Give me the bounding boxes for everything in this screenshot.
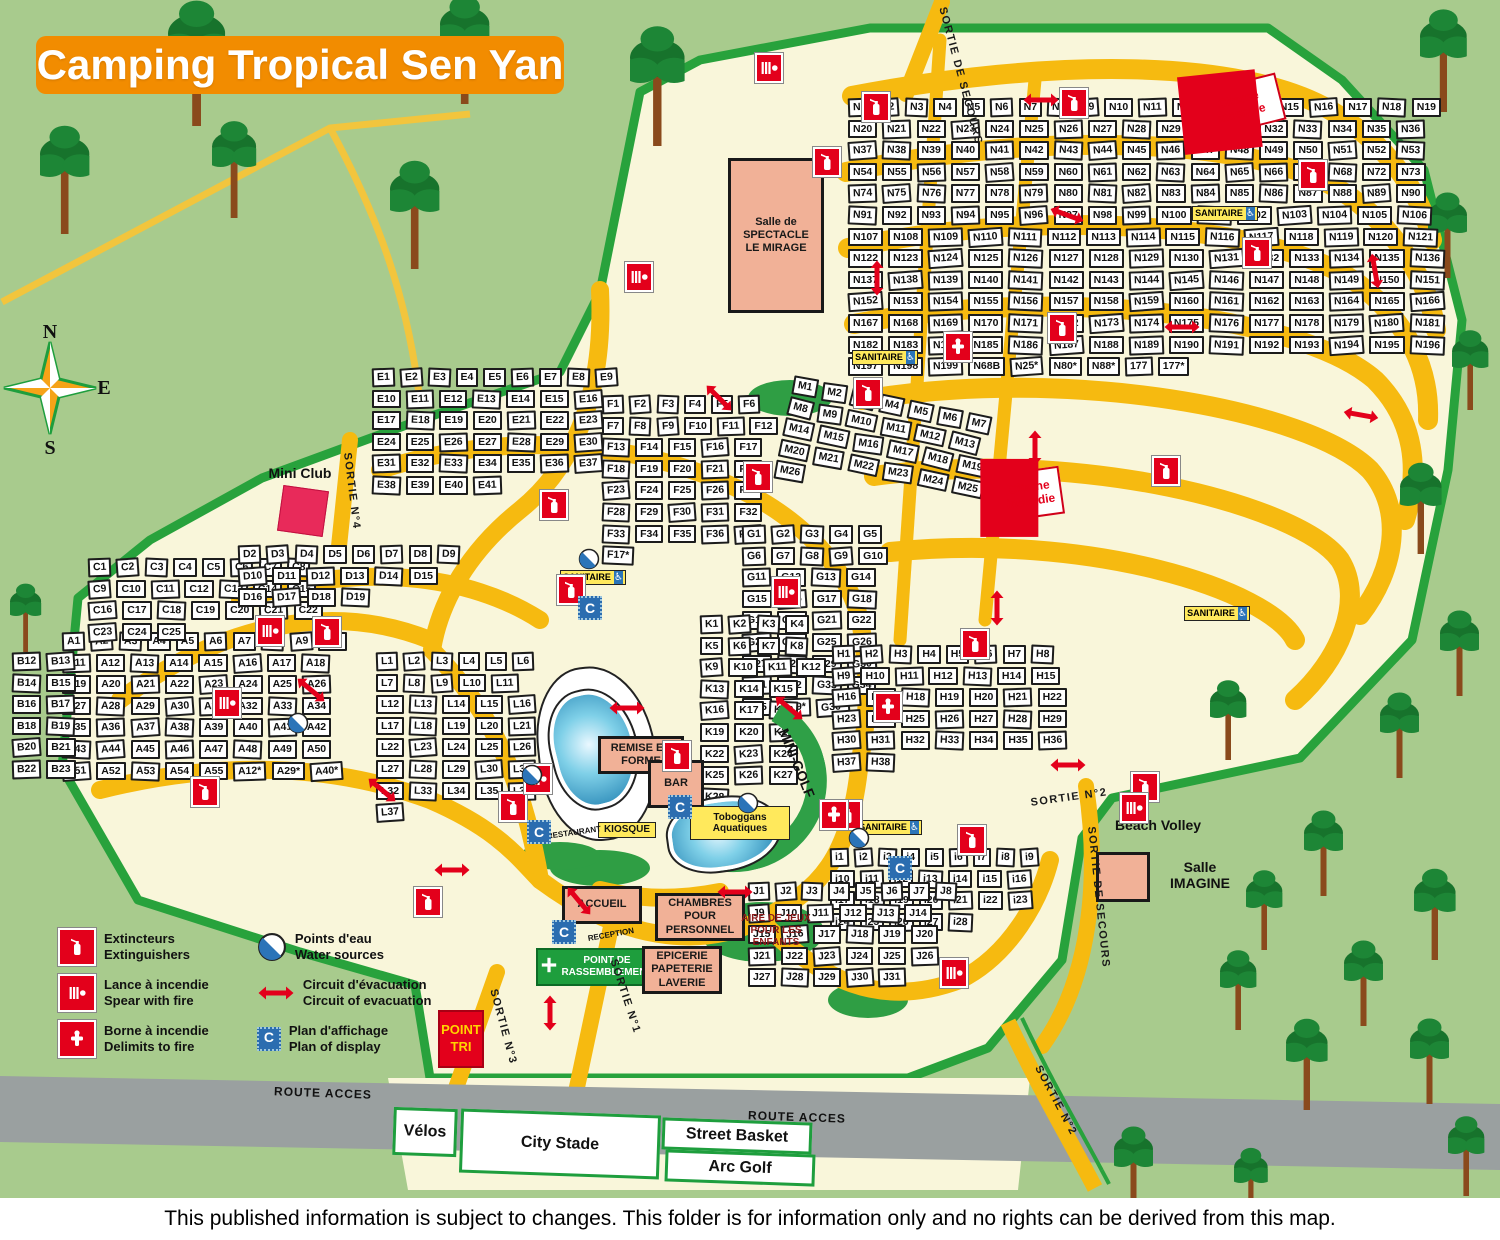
extinguisher-icon [499,792,527,822]
plot-e20: E20 [473,411,502,430]
plot-i15: i15 [977,870,1002,889]
plot-n139: N139 [928,270,964,290]
plot-f20: F20 [668,460,696,479]
plot-n168: N168 [888,314,923,333]
plot-n45: N45 [1122,141,1151,160]
plot-e22: E22 [540,411,569,430]
plot-l2: L2 [403,651,427,671]
plot-n104: N104 [1317,205,1353,225]
plot-c16: C16 [87,600,117,621]
plot-l4: L4 [458,652,480,671]
plot-n39: N39 [917,141,946,160]
plot-h32: H32 [901,731,930,750]
plot-zone-b: B12B13B14B15B16B17B18B19B20B21B22B23 [12,652,92,887]
plot-e12: E12 [439,390,468,409]
plot-n28: N28 [1122,119,1152,139]
arc-golf-label: Arc Golf [708,1157,772,1178]
plot-f13: F13 [602,438,631,458]
campsite-map: A1A2A3A4A5A6A7A8A9A10A11A12A13A14A15A16A… [0,0,1500,1240]
plot-n93: N93 [917,206,946,225]
display-plan-icon: C [552,920,576,944]
plot-k10: K10 [728,658,757,677]
plot-l24: L24 [442,738,470,757]
handicap-icon: ♿ [1238,607,1247,620]
plot-n22: N22 [917,120,946,139]
sanitaire-3: SANITAIRE♿ [1184,606,1250,621]
plot-n72: N72 [1362,163,1391,182]
plot-n85: N85 [1225,184,1254,203]
plot-n50: N50 [1293,141,1322,160]
plot-n138: N138 [888,270,924,291]
plot-n171: N171 [1008,313,1044,333]
legend-item-fire-lance-icon: Lance à incendieSpear with fire [58,974,243,1012]
fire-lance-icon [213,688,241,718]
plot-n176: N176 [1209,313,1245,333]
plot-c19: C19 [191,601,220,620]
plot-a49: A49 [268,740,297,759]
plot-e35: E35 [507,454,536,473]
plot-h22: H22 [1038,688,1067,707]
disclaimer-text: This published information is subject to… [0,1198,1500,1240]
plot-j31: J31 [878,968,906,988]
plot-h23: H23 [831,709,861,730]
plot-a39: A39 [199,718,228,737]
plot-f34: F34 [635,525,663,544]
legend-label-fr: Lance à incendie [104,977,209,993]
plot-n80s: N80* [1049,357,1082,376]
plot-n125: N125 [968,249,1003,268]
fire-lance-icon [755,53,783,83]
legend-label-en: Water sources [295,947,384,963]
plot-n66: N66 [1259,162,1289,182]
fire-hydrant-icon [820,800,848,830]
plot-n90: N90 [1396,184,1425,203]
plot-l30: L30 [475,759,504,780]
plot-n142: N142 [1049,271,1084,290]
plot-n84: N84 [1190,184,1220,204]
plot-e16: E16 [573,389,603,410]
plot-e40: E40 [439,476,468,495]
legend-label: Circuit d'évacuationCircuit of evacuatio… [303,977,432,1008]
plot-n3: N3 [904,97,928,117]
plot-m8: M8 [786,396,814,420]
plot-h15: H15 [1031,667,1060,686]
plot-a48: A48 [233,739,263,759]
extinguisher-icon [744,462,772,492]
plot-n121: N121 [1403,227,1439,247]
plot-n19: N19 [1412,98,1441,117]
plot-f3: F3 [656,395,679,415]
fire-lance-icon [256,616,284,646]
plot-n64: N64 [1191,163,1220,182]
plot-n177: N177 [1249,314,1284,333]
plot-l29: L29 [442,760,470,779]
plot-a17: A17 [267,654,296,673]
legend-label: Lance à incendieSpear with fire [104,977,209,1008]
plot-n159: N159 [1128,291,1164,312]
plot-e18: E18 [405,411,434,431]
plot-a36: A36 [96,718,126,738]
beach-volley-label: Beach Volley [1102,816,1214,834]
plot-h27: H27 [969,710,998,729]
sanitaire-3-label: SANITAIRE [1187,609,1235,619]
plot-j2: J2 [774,881,797,901]
plot-c10: C10 [116,580,145,599]
plot-n110: N110 [968,226,1004,247]
plot-e27: E27 [473,433,502,452]
plot-d18: D18 [307,588,336,607]
plot-e41: E41 [473,475,502,495]
plot-a40: A40 [233,718,262,737]
evacuation-arrow-icon [1022,92,1060,108]
plot-f9: F9 [656,416,680,436]
velos: Vélos [392,1107,458,1157]
plot-a12: A12 [96,654,125,673]
plot-f36: F36 [701,524,730,544]
plot-l28: L28 [409,759,438,779]
plot-n192: N192 [1249,336,1284,355]
bar-label: BAR [664,777,688,790]
plot-c12: C12 [184,580,213,599]
plot-n162: N162 [1249,292,1284,311]
plot-n148: N148 [1289,271,1324,290]
plot-n10: N10 [1104,98,1133,117]
plot-l8: L8 [403,673,426,693]
plot-n167: N167 [848,314,883,333]
salle-spectacle-label: Salle deSPECTACLELE MIRAGE [743,216,809,256]
plot-177: 177 [1125,357,1153,377]
aire-de-jeux-label: AIRE DE JEUXPOUR LES ENFANTS [726,913,826,949]
plot-c23: C23 [87,622,117,643]
plot-j29: J29 [813,968,841,987]
kiosque-label: KIOSQUE [604,824,650,836]
plot-n76: N76 [916,184,946,204]
plot-d11: D11 [272,567,301,586]
legend-label-fr: Extincteurs [104,931,190,947]
plot-n154: N154 [928,292,964,312]
plot-l13: L13 [409,695,438,715]
extinguisher-icon [663,741,691,771]
plot-h35: H35 [1003,731,1032,750]
sanitaire-5-label: SANITAIRE [1195,209,1243,219]
fire-hydrant-icon [944,332,972,362]
plot-n75: N75 [882,183,912,204]
handicap-icon: ♿ [906,351,915,364]
plot-m15: M15 [817,425,851,450]
plot-n186: N186 [1008,335,1044,355]
plot-n33: N33 [1293,119,1323,139]
compass-south-label: S [44,437,55,458]
plot-a29s: A29* [272,762,305,781]
fire-hydrant-icon [874,692,902,722]
plot-n164: N164 [1329,292,1365,312]
compass-rose: N E S [0,322,112,458]
legend-label: Borne à incendieDelimits to fire [104,1023,209,1054]
plot-n88s: N88* [1087,357,1120,376]
plot-d3: D3 [266,544,291,564]
plot-f35: F35 [668,525,696,544]
plot-f12: F12 [749,417,777,436]
plot-d13: D13 [340,567,369,586]
plot-n80: N80 [1054,184,1083,203]
plot-f17: F17 [734,438,762,457]
plot-n111: N111 [1007,227,1042,247]
plot-n99: N99 [1122,205,1152,225]
plot-n58: N58 [984,162,1014,183]
plot-f26: F26 [701,481,730,501]
plot-a12s: A12* [233,761,267,781]
plot-i16: i16 [1006,869,1032,889]
plot-l1: L1 [376,652,399,671]
extinguisher-icon [58,928,96,966]
plot-n27: N27 [1088,120,1117,139]
plot-n144: N144 [1128,270,1164,290]
plot-n56: N56 [916,162,946,182]
plot-n113: N113 [1086,228,1121,247]
plot-n43: N43 [1053,141,1083,161]
plot-e23: E23 [574,410,604,431]
plot-j25: J25 [878,947,906,966]
plot-c1: C1 [88,558,112,577]
plot-n133: N133 [1289,249,1324,268]
plot-f18: F18 [602,459,631,479]
plot-e3: E3 [427,368,451,388]
plot-a21: A21 [130,675,160,695]
legend-label-fr: Circuit d'évacuation [303,977,432,993]
plot-c17: C17 [122,601,151,620]
fire-lance-icon [58,974,96,1012]
plot-k6: K6 [728,636,752,655]
plot-zone-n: N1N2N3N4N5N6N7N8N9N10N11N12N13N14N15N16N… [848,98,1448,658]
plot-n105: N105 [1357,206,1392,225]
plot-n38: N38 [882,141,912,161]
extinguisher-icon [1048,313,1076,343]
legend-label-en: Spear with fire [104,993,209,1009]
plot-k1: K1 [700,615,724,634]
plot-e14: E14 [506,390,535,409]
plot-n107: N107 [848,228,883,247]
handicap-icon: ♿ [910,821,919,834]
plot-n178: N178 [1289,314,1324,333]
plot-n74: N74 [848,184,878,204]
plot-e32: E32 [406,454,435,473]
evacuation-arrow-icon [989,589,1005,627]
plot-n153: N153 [888,292,923,311]
plot-n155: N155 [968,292,1003,311]
citerne-incendie-2: Citerneincendie [995,466,1065,522]
plot-a15: A15 [198,654,227,673]
plot-n59: N59 [1019,163,1048,182]
display-plan-icon: C [257,1027,281,1051]
plot-n147: N147 [1249,271,1284,290]
plot-n157: N157 [1049,292,1084,311]
plot-n73: N73 [1396,163,1425,182]
extinguisher-icon [1152,456,1180,486]
handicap-icon: ♿ [614,571,623,584]
plot-n68b: N68B [968,357,1005,376]
plot-h21: H21 [1003,688,1033,708]
plot-f11: F11 [717,416,745,436]
plot-e1: E1 [372,368,395,387]
plot-n174: N174 [1128,313,1164,333]
plot-a30: A30 [164,696,194,717]
plot-n94: N94 [950,205,980,225]
plot-l34: L34 [442,782,470,801]
legend-label-fr: Plan d'affichage [289,1023,388,1039]
plot-n42: N42 [1019,141,1048,160]
plot-c9: C9 [87,579,112,599]
plot-h14: H14 [997,667,1026,686]
plot-k7: K7 [757,637,780,656]
plot-j13: J13 [871,903,899,923]
plot-n95: N95 [985,206,1014,225]
plot-n109: N109 [928,227,964,247]
plot-n160: N160 [1169,292,1204,311]
plot-b15: B15 [46,674,75,693]
plot-i22: i22 [978,891,1003,910]
legend-label: ExtincteursExtinguishers [104,931,190,962]
plot-n131: N131 [1208,248,1244,269]
plot-c5: C5 [202,558,225,577]
plot-a53: A53 [130,761,160,781]
plot-n88: N88 [1328,184,1357,203]
legend-label-fr: Borne à incendie [104,1023,209,1039]
plot-n115: N115 [1165,228,1200,247]
water-point-icon [848,827,870,849]
evacuation-arrow-icon [542,994,558,1032]
plot-n146: N146 [1209,270,1245,290]
plot-l12: L12 [376,695,404,714]
plot-h38: H38 [866,752,896,772]
plot-n68: N68 [1327,162,1357,182]
plot-l17: L17 [376,717,404,736]
plot-n36: N36 [1396,119,1426,139]
plot-e26: E26 [439,432,468,452]
legend-item-fire-hydrant-icon: Borne à incendieDelimits to fire [58,1020,243,1058]
plot-n103: N103 [1276,205,1312,226]
plot-f6: F6 [738,395,761,414]
plot-n16: N16 [1308,97,1338,118]
plot-a47: A47 [199,740,228,759]
plot-n127: N127 [1049,249,1084,268]
citerne-incendie-2-label: Citerneincendie [1004,476,1056,511]
compass-east-label: E [97,377,110,399]
plot-l5: L5 [485,652,507,671]
plot-n65: N65 [1224,162,1254,183]
plot-n25s: N25* [1010,356,1045,377]
plot-n108: N108 [888,228,923,247]
plot-k11: K11 [762,658,791,678]
plot-l22: L22 [376,738,404,757]
map-title: Camping Tropical Sen Yan [36,36,564,94]
plot-f24: F24 [635,481,663,500]
plot-n170: N170 [968,314,1003,333]
plot-l26: L26 [508,738,537,758]
plot-a38: A38 [164,718,194,738]
plot-e38: E38 [372,475,401,495]
plot-a1: A1 [62,632,86,651]
plot-n41: N41 [985,141,1015,161]
plot-n145: N145 [1168,270,1204,291]
plot-j27: J27 [748,968,776,987]
plot-h37: H37 [831,752,861,773]
plot-n120: N120 [1363,228,1398,247]
plot-zone-j: J1J2J3J4J5J6J7J8J9J10J11J12J13J14J15J16J… [748,882,963,1062]
plot-e9: E9 [594,367,618,387]
plot-e28: E28 [506,432,535,452]
plot-e25: E25 [406,433,435,452]
plot-j19: J19 [878,925,906,944]
plot-m20: M20 [778,438,812,463]
plot-k9: K9 [699,657,724,677]
plot-n91: N91 [848,205,878,225]
plot-m21: M21 [813,446,846,470]
chambres-personnel-label: CHAMBRESPOURPERSONNEL [666,897,734,937]
fire-lance-icon [625,262,653,292]
plot-n141: N141 [1008,270,1044,290]
plot-c18: C18 [156,601,186,621]
plot-n158: N158 [1089,292,1124,311]
plot-k5: K5 [700,637,723,656]
legend-label-en: Delimits to fire [104,1039,209,1055]
plot-d4: D4 [294,544,318,564]
water-point-icon [287,712,309,734]
plot-e4: E4 [456,368,479,387]
plot-b12: B12 [12,651,42,671]
plot-i23: i23 [1007,890,1033,910]
plot-a40s: A40* [309,760,344,781]
plot-l16: L16 [508,694,537,715]
display-plan-icon: C [578,596,602,620]
extinguisher-icon [1243,238,1271,268]
plot-n6: N6 [990,98,1014,117]
extinguisher-icon [540,490,568,520]
plot-n55: N55 [882,163,911,182]
plot-h33: H33 [934,731,964,751]
fire-lance-icon [772,577,800,607]
plot-l19: L19 [442,717,470,736]
plot-n89: N89 [1361,183,1391,204]
plot-n180: N180 [1369,313,1405,334]
plot-d2: D2 [238,545,262,564]
point-rassemblement: POINT DERASSEMBLEMENT [536,948,658,986]
plot-m26: M26 [773,460,806,484]
plot-l7: L7 [376,674,398,693]
plot-e31: E31 [372,454,401,474]
sanitaire-5: SANITAIRE♿ [1192,206,1258,221]
water-point-icon [578,548,600,570]
plot-m14: M14 [782,417,816,442]
compass-north-label: N [43,322,58,343]
plot-d5: D5 [323,545,346,564]
extinguisher-icon [1060,88,1088,118]
plot-a50: A50 [302,740,331,759]
plot-b19: B19 [46,716,76,736]
plot-h9: H9 [831,666,856,686]
plot-n143: N143 [1089,271,1124,290]
plot-n25: N25 [1019,120,1048,139]
plot-a14: A14 [164,654,193,673]
legend-label-en: Extinguishers [104,947,190,963]
plot-n60: N60 [1054,163,1083,182]
plot-d16: D16 [238,588,267,607]
fire-lance-icon [1120,793,1148,823]
legend-item-evacuation-arrow-icon: Circuit d'évacuationCircuit of evacuatio… [257,974,488,1012]
plot-n11: N11 [1138,98,1167,118]
plot-n77: N77 [951,184,980,203]
legend-label: Plan d'affichagePlan of display [289,1023,388,1054]
plot-a16: A16 [232,653,262,674]
